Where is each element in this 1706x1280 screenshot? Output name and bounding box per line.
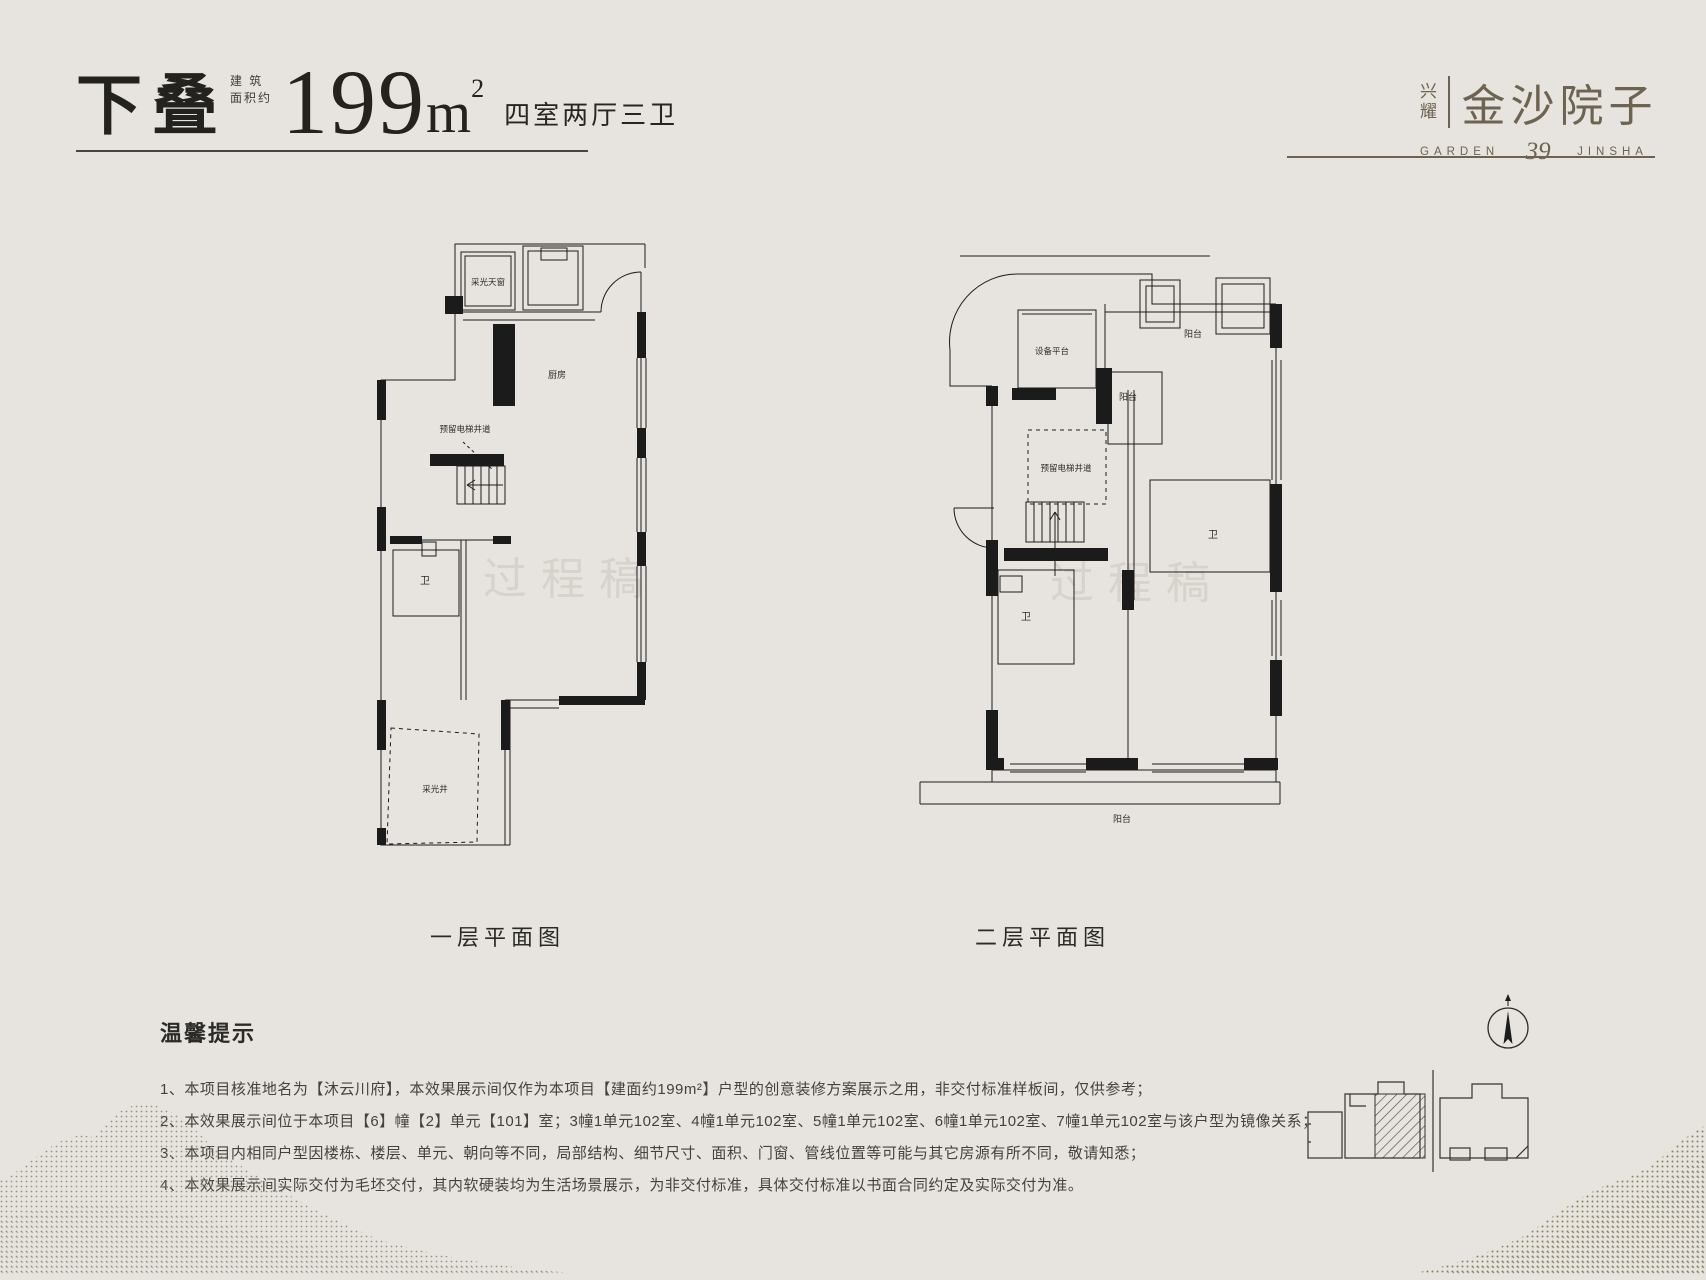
area-value: 199 m 2: [282, 66, 484, 140]
room-label-balcony-top: 阳台: [1184, 328, 1202, 339]
plan2-wall-lines: [920, 256, 1281, 804]
room-label-elevator-shaft: 预留电梯井道: [439, 424, 491, 434]
area-prefix-line1: 建 筑: [230, 75, 272, 88]
watermark-text: 过程稿: [483, 555, 650, 604]
second-floor-caption: 二层平面图: [895, 920, 1190, 952]
project-name: 金沙院子: [1462, 70, 1658, 134]
area-prefix-line2: 面积约: [230, 92, 272, 105]
brochure-page: 下叠 建 筑 面积约 199 m 2 四室两厅三卫 兴 耀 金沙院子 GARDE…: [0, 0, 1706, 1280]
brand-name-vertical: 兴 耀: [1420, 82, 1438, 121]
mountain-art-left: [0, 1030, 600, 1280]
north-compass-icon: [1478, 990, 1538, 1065]
room-label-bath: 卫: [420, 576, 430, 587]
room-label-elevator-shaft: 预留电梯井道: [1040, 463, 1092, 473]
logo-sub-number: 39: [1526, 138, 1551, 166]
room-label-equipment-platform: 设备平台: [1035, 346, 1069, 356]
first-floor-caption: 一层平面图: [345, 920, 650, 952]
room-label-balcony-mid: 阳台: [1119, 391, 1137, 402]
room-label-skylight: 采光天窗: [471, 277, 505, 287]
brand-logo: 兴 耀 金沙院子 GARDEN 39 JINSHA: [1420, 70, 1658, 166]
logo-top: 兴 耀 金沙院子: [1420, 70, 1658, 134]
room-label-bath-left: 卫: [1021, 612, 1031, 623]
header-divider-line: [76, 150, 588, 152]
logo-divider: [1448, 76, 1450, 128]
unit-type-title: 下叠: [76, 74, 228, 140]
brand-char-bottom: 耀: [1420, 102, 1438, 122]
logo-subtitle: GARDEN 39 JINSHA: [1420, 138, 1648, 166]
mountain-art-right: [1406, 1085, 1706, 1280]
area-superscript: 2: [471, 79, 484, 100]
brand-char-top: 兴: [1420, 82, 1438, 102]
watermark-text: 过程稿: [1050, 559, 1224, 608]
area-unit: m: [426, 87, 471, 139]
room-label-terrace: 阳台: [1113, 813, 1131, 824]
first-floor-plan: 过程稿: [345, 232, 650, 847]
room-label-kitchen: 厨房: [548, 369, 566, 380]
second-floor-plan: 过程稿: [900, 240, 1285, 840]
header: 下叠 建 筑 面积约 199 m 2 四室两厅三卫: [76, 66, 678, 140]
area-prefix: 建 筑 面积约: [230, 75, 272, 105]
area-number: 199: [282, 66, 426, 140]
room-label-light-well: 采光井: [422, 784, 448, 794]
room-label-bath-right: 卫: [1208, 530, 1218, 541]
logo-divider-line: [1287, 156, 1655, 158]
room-layout-text: 四室两厅三卫: [504, 95, 678, 132]
